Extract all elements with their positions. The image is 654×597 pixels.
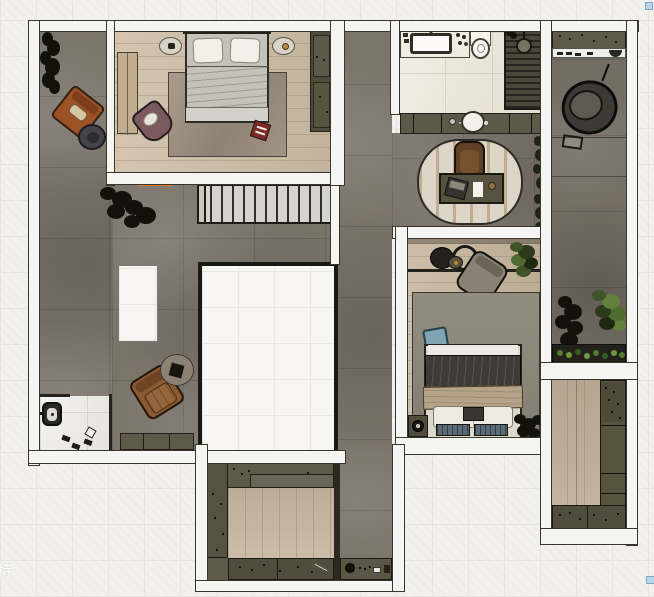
- balcony-seam-2: [552, 176, 626, 177]
- wall-storage-bottom: [540, 528, 638, 545]
- terrace-side-table: [78, 124, 106, 150]
- bed2-dark-duvet: [425, 355, 521, 388]
- wall-bedroom2-left: [395, 226, 408, 455]
- wall-bedroom1-bottom: [106, 172, 345, 185]
- nightstand-right: [272, 37, 295, 55]
- terrace-plant: [42, 32, 53, 46]
- planter-box: [552, 344, 626, 364]
- selection-handle-top-right[interactable]: [645, 2, 653, 10]
- selection-handle-bottom-right[interactable]: [646, 576, 654, 584]
- closet-cabinet-left: [206, 462, 228, 558]
- wall-living-bottom: [28, 450, 346, 464]
- floor-void: [198, 262, 338, 452]
- cup: [488, 182, 496, 190]
- bath-decor-right: [456, 33, 460, 37]
- bedroom2-nightstand: [408, 415, 428, 437]
- entry-shelf: [552, 48, 626, 58]
- wall-balcony-bottom: [540, 362, 638, 380]
- wall-bedroom1-left: [106, 20, 115, 186]
- bed2-bench-right: [474, 424, 508, 436]
- pillow-right: [230, 37, 261, 63]
- closet-room-wood: [228, 488, 334, 558]
- wall-closet-left: [195, 444, 208, 592]
- wall-bathroom-left: [390, 20, 400, 115]
- wall-left: [28, 20, 40, 466]
- closet-cabinet-step: [250, 474, 334, 488]
- balcony-plant-dark: [558, 296, 572, 308]
- bed2-bench-left: [436, 424, 470, 436]
- wall-corridor-divider: [330, 185, 340, 265]
- round-basin: [461, 111, 485, 133]
- bed2-dark-cushion: [463, 407, 484, 421]
- nightstand-left: [159, 37, 182, 55]
- shower-head: [516, 38, 532, 54]
- master-duvet: [186, 66, 268, 107]
- wall-closet-right: [392, 444, 405, 592]
- balcony-seam-1: [552, 137, 626, 138]
- bedroom2-plant: [510, 242, 523, 252]
- storage-cabinet-column: [600, 380, 626, 506]
- basin-knob: [449, 118, 456, 125]
- notepad: [472, 181, 484, 198]
- toilet-bowl: [471, 38, 490, 59]
- staircase: [197, 184, 333, 224]
- wall-bedroom2-top: [392, 226, 550, 239]
- hall-bottom-cabinet: [340, 558, 392, 580]
- entry-shoe-cabinet: [552, 30, 626, 49]
- entry-wall-line-h: [40, 394, 70, 397]
- watermark-text: 特: [0, 560, 13, 581]
- wall-right-outer: [626, 20, 638, 546]
- bath-sink: [410, 33, 452, 54]
- balcony-plant-green: [592, 290, 606, 301]
- entry-wall-line-v: [109, 394, 112, 454]
- master-bed-foot: [186, 107, 268, 121]
- living-plant: [100, 187, 116, 200]
- storage-plank-seam: [576, 378, 577, 506]
- living-cabinet-row: [120, 433, 194, 450]
- white-island: [118, 265, 158, 342]
- pillow-left: [193, 37, 224, 63]
- wall-closet-bottom: [195, 580, 405, 592]
- storage-cabinet-row: [552, 505, 626, 529]
- wall-right-column-left: [540, 20, 552, 545]
- wall-bedroom1-right: [330, 20, 345, 186]
- bath-decor-left: [403, 33, 408, 37]
- round-stool: [448, 256, 463, 269]
- wall-bedroom2-bottom: [395, 437, 552, 455]
- floor-plan-canvas: 特: [0, 0, 654, 597]
- entry-wall-fixture: [42, 402, 62, 426]
- bedroom2-nightstand-plant: [514, 414, 526, 424]
- closet-cabinet-bottom: [228, 558, 334, 580]
